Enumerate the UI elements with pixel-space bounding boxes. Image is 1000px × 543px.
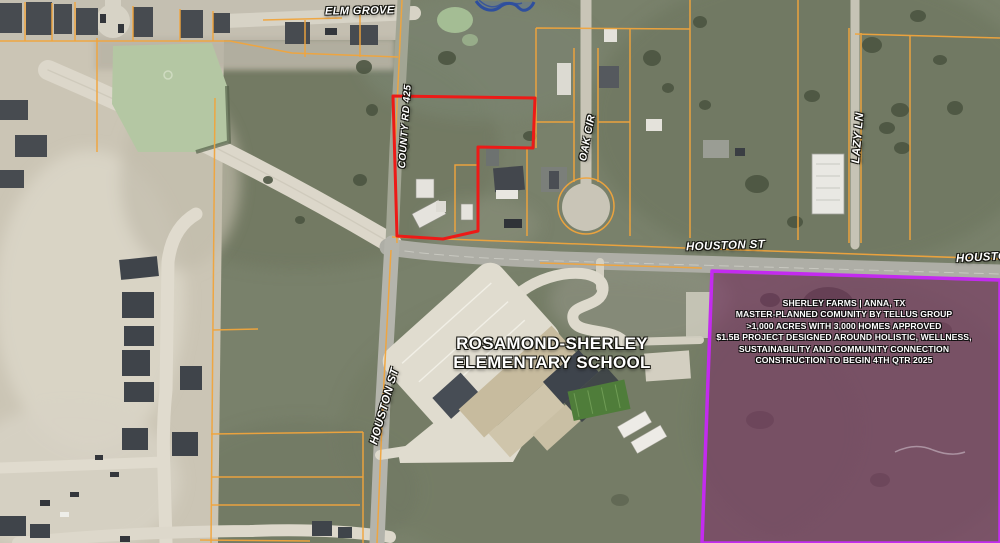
callout-line: SUSTAINABILITY AND COMMUNITY CONNECTION: [708, 344, 980, 355]
map-viewport[interactable]: ELM GROVE COUNTY RD 425 OAK CIR LAZY LN …: [0, 0, 1000, 543]
development-callout: SHERLEY FARMS | ANNA, TX MASTER-PLANNED …: [708, 298, 980, 366]
callout-line: SHERLEY FARMS | ANNA, TX: [708, 298, 980, 309]
street-label-elm-grove: ELM GROVE: [325, 5, 395, 17]
callout-line: MASTER-PLANNED COMUNITY BY TELLUS GROUP: [708, 309, 980, 320]
callout-line: CONSTRUCTION TO BEGIN 4TH QTR 2025: [708, 355, 980, 366]
callout-line: >1,000 ACRES WITH 3,000 HOMES APPROVED: [708, 321, 980, 332]
school-label-line1: ROSAMOND-SHERLEY: [438, 334, 666, 353]
school-label: ROSAMOND-SHERLEY ELEMENTARY SCHOOL: [438, 334, 666, 372]
school-label-line2: ELEMENTARY SCHOOL: [438, 353, 666, 372]
street-label-houston-st-right: HOUSTON ST: [956, 250, 1000, 266]
callout-line: $1.5B PROJECT DESIGNED AROUND HOLISTIC, …: [708, 332, 980, 343]
aerial-map: [0, 0, 1000, 543]
